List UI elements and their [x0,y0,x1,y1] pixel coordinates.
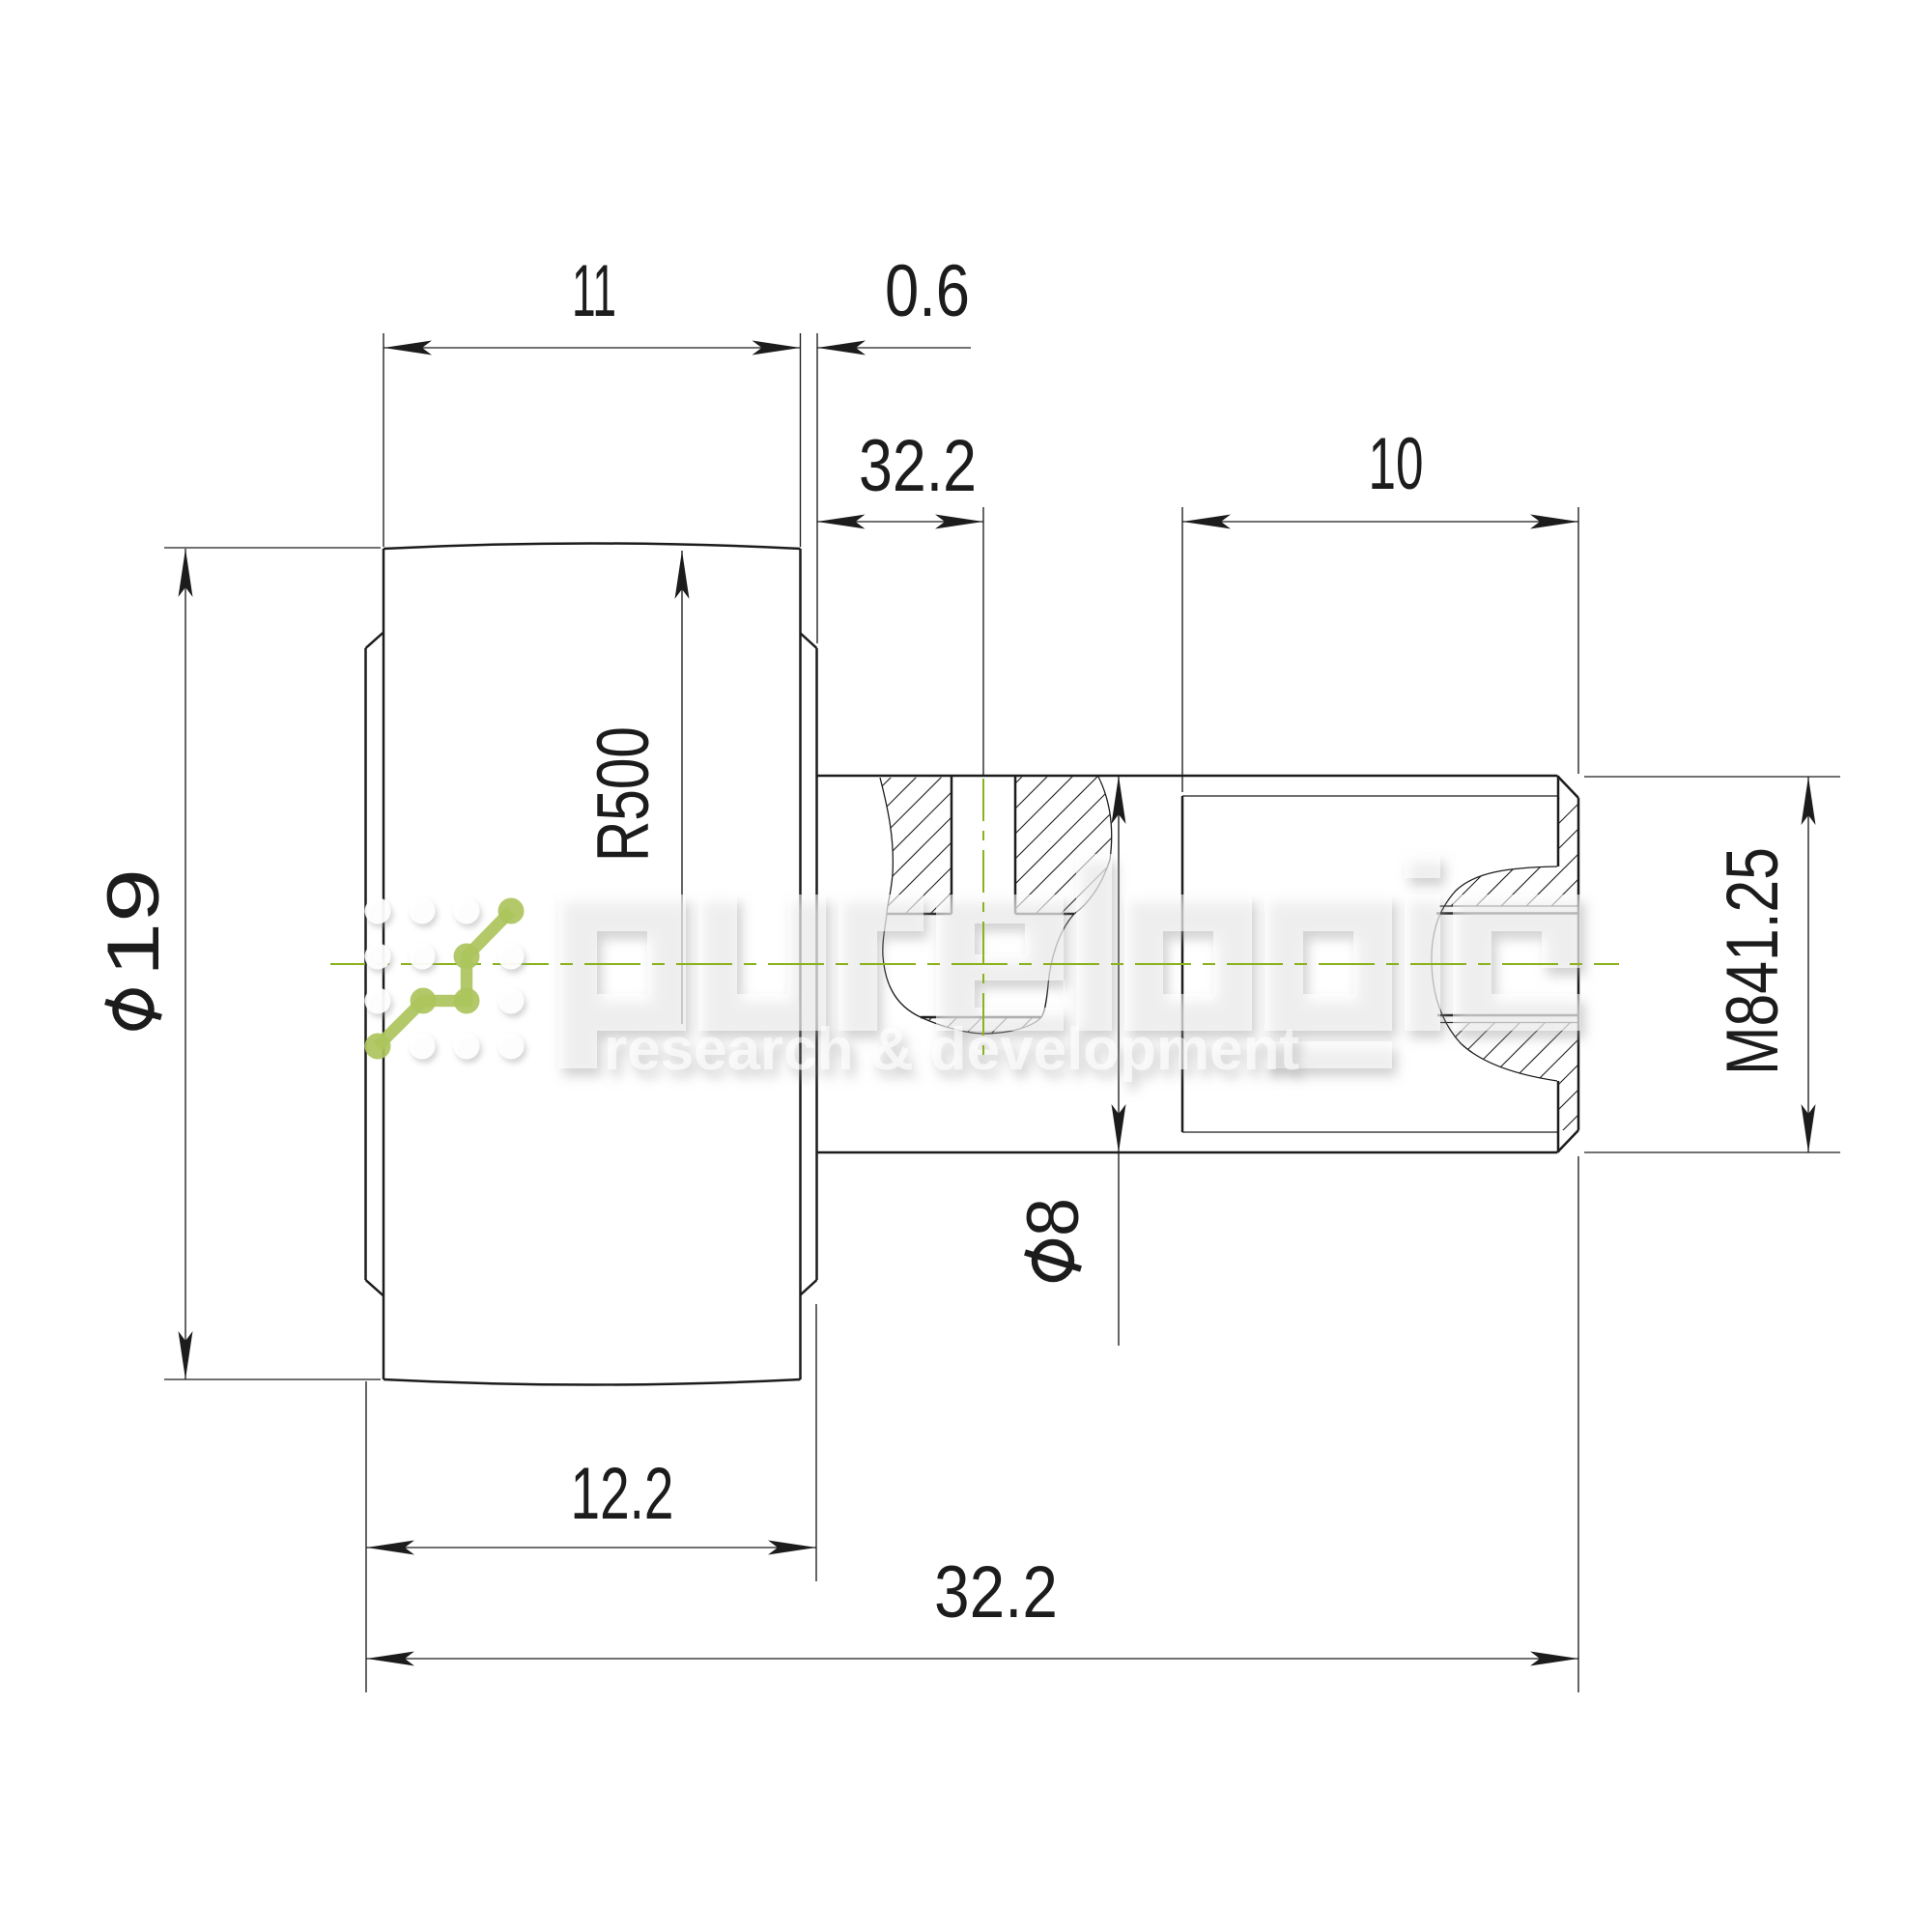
svg-text:8: 8 [1012,1198,1094,1236]
svg-text:M841.25: M841.25 [1712,847,1794,1075]
svg-text:R500: R500 [582,726,665,862]
svg-text:11: 11 [572,250,616,332]
svg-text:19: 19 [93,868,175,977]
svg-text:0.6: 0.6 [885,250,970,332]
svg-text:32.2: 32.2 [934,1551,1058,1634]
svg-text:12.2: 12.2 [571,1453,674,1535]
svg-text:10: 10 [1369,423,1424,505]
svg-text:32.2: 32.2 [859,425,977,507]
svg-text:research & development: research & development [604,1016,1299,1083]
